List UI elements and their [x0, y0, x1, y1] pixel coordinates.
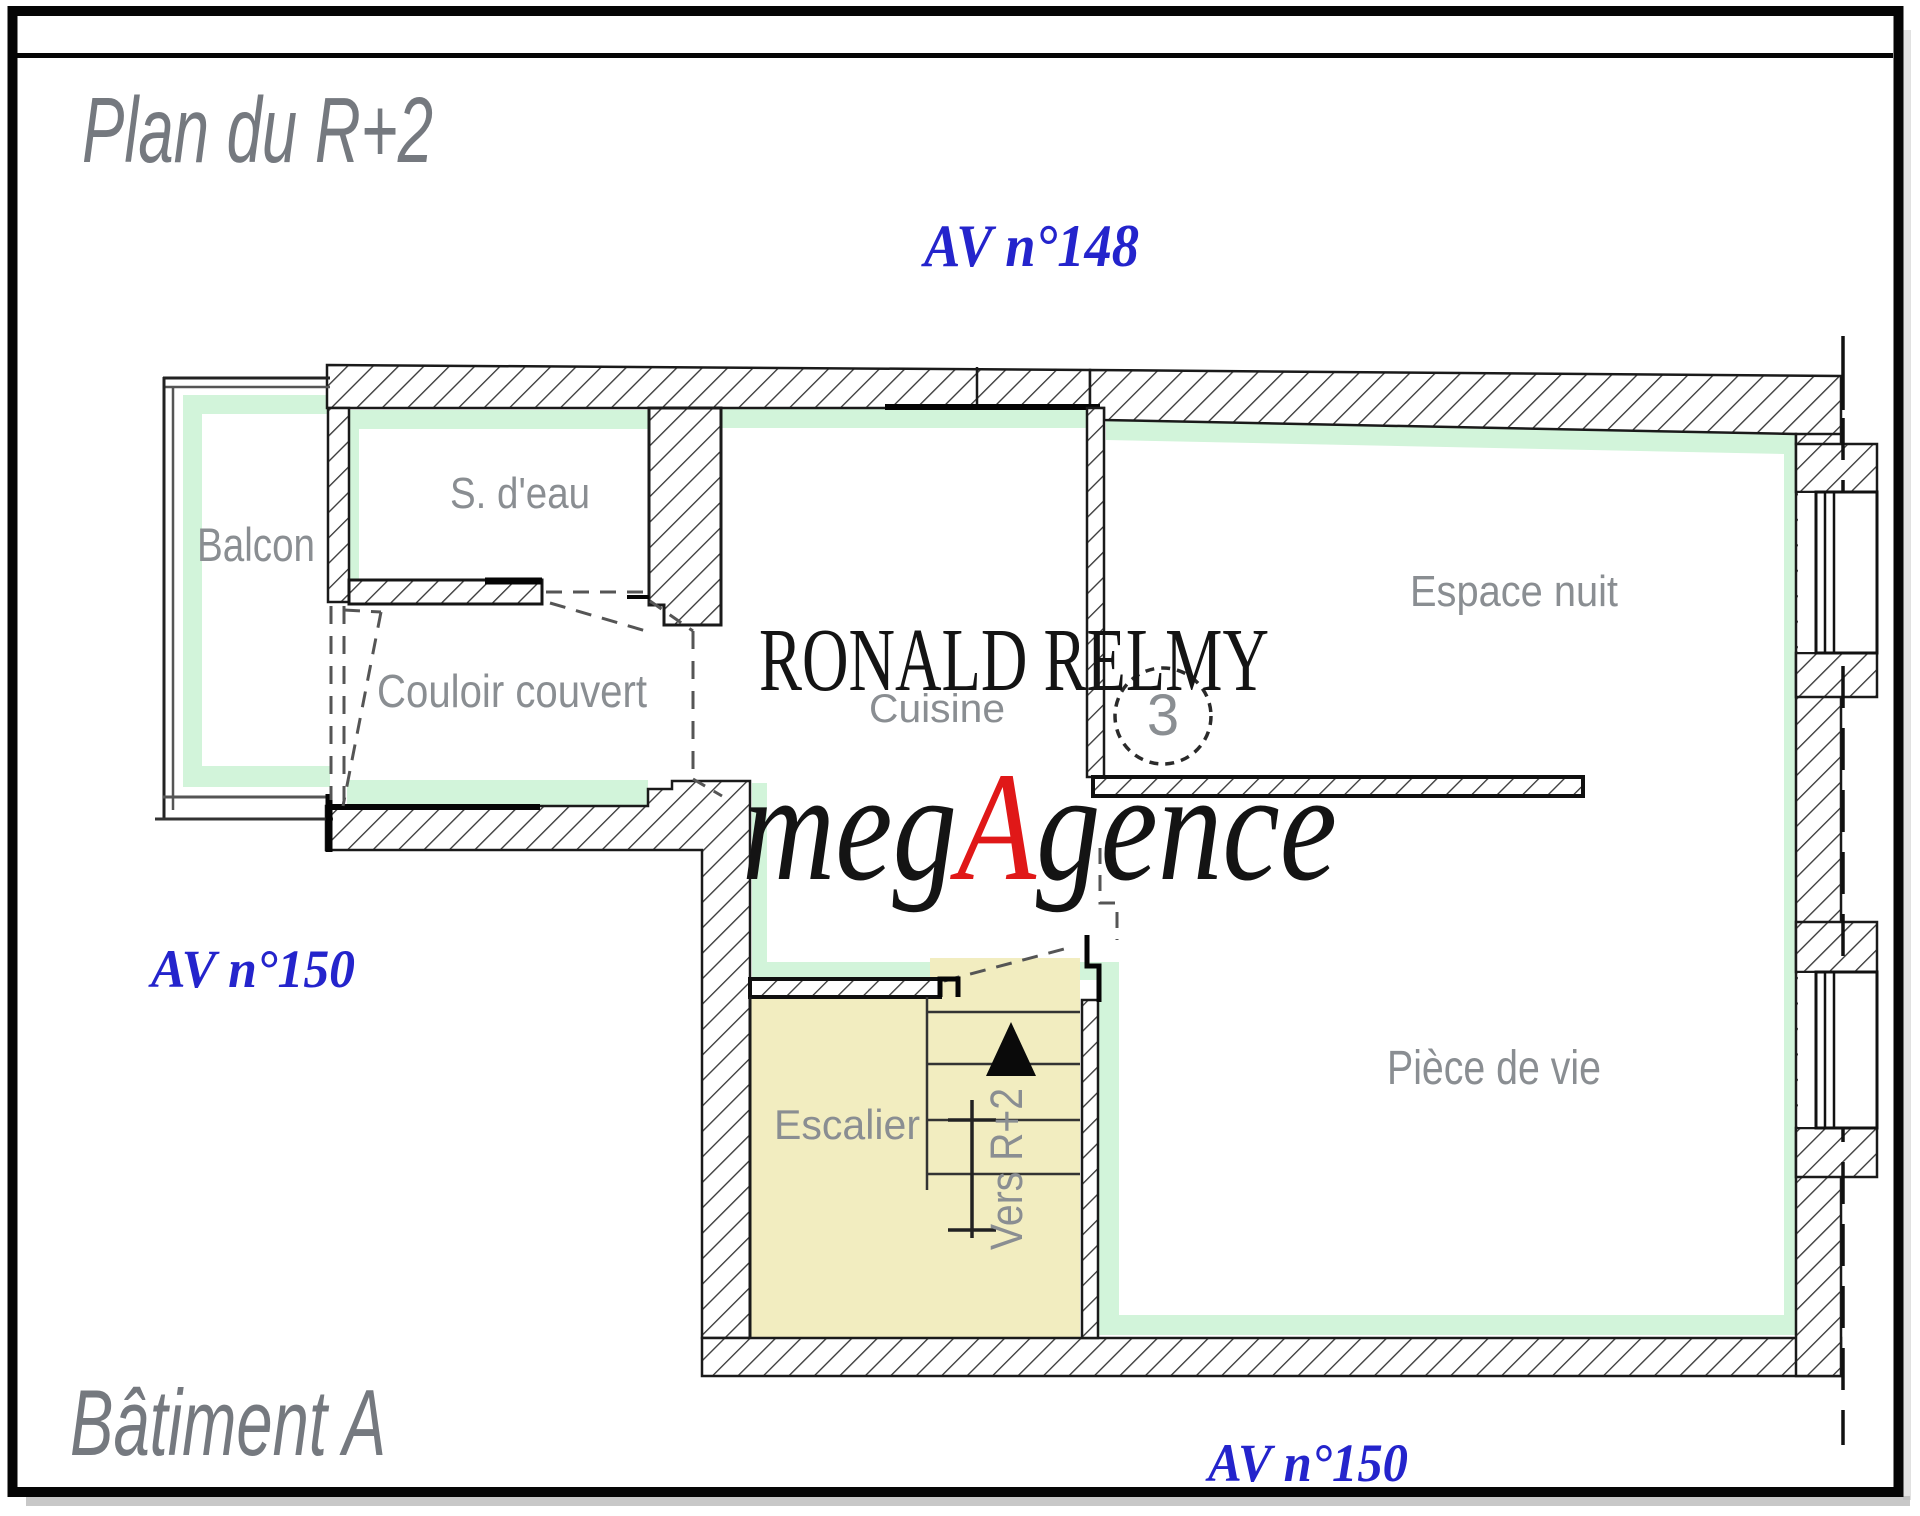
svg-text:Bâtiment A: Bâtiment A [70, 1370, 386, 1475]
svg-text:Couloir couvert: Couloir couvert [377, 665, 647, 717]
svg-text:Balcon: Balcon [197, 518, 315, 571]
svg-text:megAgence: megAgence [742, 740, 1337, 913]
svg-text:S. d'eau: S. d'eau [450, 469, 590, 518]
svg-text:AV n°150: AV n°150 [148, 939, 355, 999]
svg-text:Escalier: Escalier [774, 1101, 920, 1148]
svg-text:Pièce de vie: Pièce de vie [1387, 1042, 1601, 1095]
svg-text:RONALD RELMY: RONALD RELMY [759, 611, 1269, 710]
svg-text:Espace nuit: Espace nuit [1410, 567, 1618, 616]
svg-text:AV n°148: AV n°148 [920, 213, 1139, 279]
svg-text:AV n°150: AV n°150 [1205, 1433, 1408, 1493]
svg-text:Plan du R+2: Plan du R+2 [82, 78, 433, 182]
svg-text:Vers R+2: Vers R+2 [981, 1088, 1032, 1250]
